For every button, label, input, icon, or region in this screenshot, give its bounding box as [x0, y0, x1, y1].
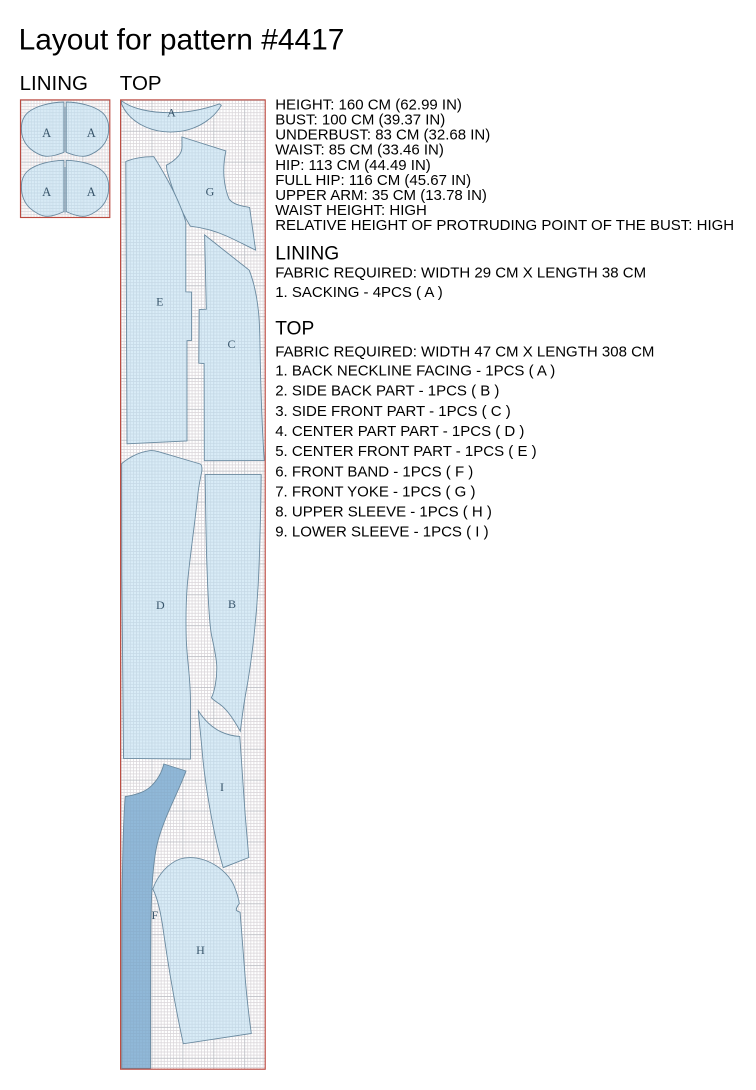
svg-text:H: H — [196, 943, 205, 957]
svg-text:Layout for pattern #4417: Layout for pattern #4417 — [19, 23, 345, 56]
svg-text:B: B — [228, 597, 236, 611]
svg-text:C: C — [227, 337, 235, 351]
svg-text:A: A — [42, 126, 51, 140]
svg-text:D: D — [156, 598, 165, 612]
svg-text:FABRIC REQUIRED: WIDTH 47 CM X: FABRIC REQUIRED: WIDTH 47 CM X LENGTH 30… — [275, 344, 654, 361]
svg-text:1. SACKING - 4PCS ( A ): 1. SACKING - 4PCS ( A ) — [275, 284, 443, 301]
svg-text:A: A — [87, 185, 96, 199]
svg-text:G: G — [206, 184, 215, 198]
svg-text:F: F — [151, 908, 158, 922]
svg-text:4. CENTER PART PART - 1PCS ( D: 4. CENTER PART PART - 1PCS ( D ) — [275, 423, 524, 440]
svg-text:E: E — [156, 294, 163, 308]
svg-text:FABRIC REQUIRED: WIDTH 29 CM X: FABRIC REQUIRED: WIDTH 29 CM X LENGTH 38… — [275, 265, 646, 282]
svg-text:6. FRONT BAND - 1PCS ( F ): 6. FRONT BAND - 1PCS ( F ) — [275, 463, 473, 480]
svg-text:9. LOWER SLEEVE - 1PCS ( I ): 9. LOWER SLEEVE - 1PCS ( I ) — [275, 524, 488, 541]
svg-text:A: A — [42, 185, 51, 199]
svg-text:I: I — [220, 780, 224, 794]
svg-text:RELATIVE HEIGHT OF PROTRUDING: RELATIVE HEIGHT OF PROTRUDING POINT OF T… — [275, 217, 734, 234]
svg-text:A: A — [87, 126, 96, 140]
svg-text:LINING: LINING — [20, 72, 88, 95]
svg-text:TOP: TOP — [120, 72, 162, 95]
svg-text:5. CENTER FRONT PART - 1PCS (: 5. CENTER FRONT PART - 1PCS ( E ) — [275, 443, 536, 460]
svg-text:A: A — [167, 105, 176, 119]
svg-text:7. FRONT YOKE - 1PCS ( G ): 7. FRONT YOKE - 1PCS ( G ) — [275, 483, 475, 500]
svg-text:TOP: TOP — [275, 318, 314, 339]
svg-text:2. SIDE BACK PART - 1PCS ( B ): 2. SIDE BACK PART - 1PCS ( B ) — [275, 383, 499, 400]
svg-text:LINING: LINING — [275, 243, 339, 264]
svg-text:8. UPPER SLEEVE - 1PCS ( H ): 8. UPPER SLEEVE - 1PCS ( H ) — [275, 504, 492, 521]
svg-text:1. BACK NECKLINE FACING - 1PCS: 1. BACK NECKLINE FACING - 1PCS ( A ) — [275, 363, 555, 380]
svg-text:3. SIDE FRONT PART - 1PCS ( C: 3. SIDE FRONT PART - 1PCS ( C ) — [275, 403, 511, 420]
